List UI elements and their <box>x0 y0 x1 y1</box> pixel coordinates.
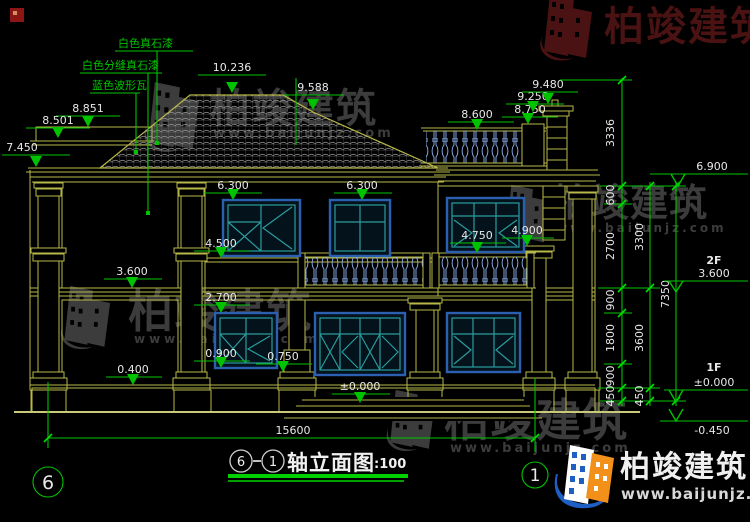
dim-3600: 3600 <box>633 324 646 352</box>
dim-total: 15600 <box>276 424 311 437</box>
material-text-2: 白色分缝真石漆 <box>82 58 159 72</box>
cad-canvas: 柏竣建筑 www.baijunjz.com 柏竣建筑 www.baijunjz.… <box>0 0 750 522</box>
svg-text:-0.450: -0.450 <box>694 424 729 437</box>
svg-text:6: 6 <box>237 455 245 470</box>
window-2f-center <box>330 200 390 256</box>
svg-text:±0.000: ±0.000 <box>340 380 381 393</box>
logo-name: 柏竣建筑 <box>620 450 748 485</box>
svg-text:8.501: 8.501 <box>42 114 74 127</box>
quoin-strip <box>543 186 565 240</box>
watermark-name: 柏竣建筑 <box>604 4 750 50</box>
dim-900b: 900 <box>604 366 617 387</box>
window-1f-right <box>447 313 520 372</box>
dim-3300: 3300 <box>633 223 646 251</box>
title-scale: :100 <box>374 457 406 472</box>
axis-bubble-right: 1 <box>522 462 548 488</box>
title-text: 轴立面图 <box>287 451 375 475</box>
svg-text:8.851: 8.851 <box>72 102 104 115</box>
right-level-1f: 1F±0.000 <box>664 361 748 402</box>
entrance-steps <box>284 397 542 421</box>
dim-600: 600 <box>604 185 617 206</box>
window-1f-center <box>315 313 405 375</box>
svg-text:2F: 2F <box>706 254 721 267</box>
level-marker-8600: 8.600 <box>448 108 514 130</box>
svg-text:9.480: 9.480 <box>532 78 564 91</box>
red-corner-mark-dot <box>13 11 17 15</box>
svg-text:9.588: 9.588 <box>297 81 329 94</box>
svg-text:6: 6 <box>42 472 54 494</box>
brand-logo: 柏竣建筑 www.baijunjz.com <box>555 445 750 508</box>
svg-text:1: 1 <box>530 466 541 486</box>
svg-text:3.600: 3.600 <box>116 265 148 278</box>
pilaster-left-corner <box>30 183 67 390</box>
dim-1800: 1800 <box>604 324 617 352</box>
material-text-3: 蓝色波形瓦 <box>92 78 147 92</box>
chain-ticks <box>618 76 680 405</box>
right-level-minus-0450: -0.450 <box>660 409 748 437</box>
material-text-1: 白色真石漆 <box>118 36 173 50</box>
dim-7350: 7350 <box>659 280 672 308</box>
balcony-right <box>432 253 536 288</box>
terrace-balustrade <box>419 124 550 166</box>
svg-text:3.600: 3.600 <box>698 267 730 280</box>
logo-url: www.baijunjz.com <box>621 485 750 503</box>
svg-text:10.236: 10.236 <box>213 61 252 74</box>
chain-labels: 3336 600 2700 900 1800 900 450 3300 3600… <box>604 119 672 407</box>
watermark-url: www.baijunjz.com <box>450 441 631 456</box>
terrace-pier <box>522 124 544 166</box>
dim-900a: 900 <box>604 290 617 311</box>
svg-text:4.750: 4.750 <box>461 229 493 242</box>
dim-3336: 3336 <box>604 119 617 147</box>
title-underline-thick <box>228 474 408 478</box>
svg-text:7.450: 7.450 <box>6 141 38 154</box>
watermark-top-right-red: 柏竣建筑 <box>540 0 750 61</box>
level-marker-0400: 0.400 <box>106 363 162 385</box>
right-level-2f: 2F3.600 <box>664 254 748 292</box>
dim-450a: 450 <box>604 386 617 407</box>
dim-2700: 2700 <box>604 232 617 260</box>
svg-text:1: 1 <box>269 455 277 470</box>
title-block: 6 1 轴立面图 :100 <box>228 450 408 482</box>
title-underline-thin <box>228 480 404 482</box>
svg-text:1F: 1F <box>706 361 721 374</box>
svg-text:±0.000: ±0.000 <box>694 376 735 389</box>
balcony-center <box>298 253 430 288</box>
svg-text:6.900: 6.900 <box>696 160 728 173</box>
axis-bubble-left: 6 <box>33 467 63 497</box>
dim-450b: 450 <box>633 386 646 407</box>
